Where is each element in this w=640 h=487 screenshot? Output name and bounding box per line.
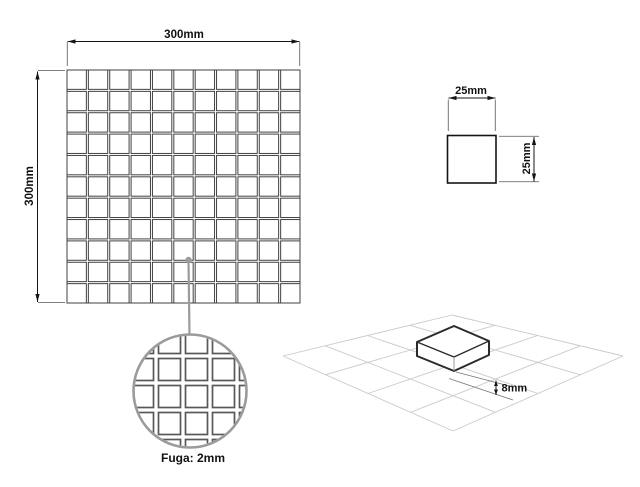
sheet-tile: [174, 155, 193, 174]
sheet-tile: [174, 134, 193, 153]
sheet-tile: [238, 113, 257, 132]
detail-tile: [159, 305, 181, 327]
sheet-tile: [88, 220, 107, 239]
iso-tile-silhouette: [417, 326, 489, 371]
sheet-tile: [281, 134, 300, 153]
sheet-tile: [281, 70, 300, 89]
sheet-tile: [88, 70, 107, 89]
sheet-tile: [152, 91, 171, 110]
sheet-tile: [110, 198, 129, 217]
sheet-tile: [88, 91, 107, 110]
sheet-tile: [195, 113, 214, 132]
sheet-tile: [152, 284, 171, 303]
detail-tile: [267, 413, 289, 435]
detail-tile: [240, 386, 262, 408]
sheet-tile: [238, 134, 257, 153]
detail-tile: [105, 359, 127, 381]
sheet-tile: [110, 134, 129, 153]
detail-tile: [132, 440, 154, 462]
sheet-tile: [195, 91, 214, 110]
sheet-tile: [238, 70, 257, 89]
sheet-tile: [281, 284, 300, 303]
sheet-height-label: 300mm: [24, 166, 36, 206]
sheet-tile: [67, 284, 86, 303]
single-tile: [448, 136, 497, 184]
sheet-tile: [174, 113, 193, 132]
sheet-tile: [281, 155, 300, 174]
sheet-tile: [238, 198, 257, 217]
sheet-tile: [259, 134, 278, 153]
sheet-tile: [238, 177, 257, 196]
sheet-tile: [152, 155, 171, 174]
sheet-tile: [110, 220, 129, 239]
sheet-tile: [174, 177, 193, 196]
sheet-tile: [88, 284, 107, 303]
sheet-tile: [152, 220, 171, 239]
sheet-tile: [131, 70, 150, 89]
sheet-tile: [174, 70, 193, 89]
sheet-tile: [281, 113, 300, 132]
sheet-tile: [259, 177, 278, 196]
detail-tile: [213, 305, 235, 327]
detail-tile: [240, 440, 262, 462]
sheet-tile: [110, 113, 129, 132]
sheet-tile: [238, 155, 257, 174]
sheet-tile: [259, 70, 278, 89]
grout-size-label: Fuga: 2mm: [161, 451, 225, 465]
sheet-tile: [238, 284, 257, 303]
sheet-tile: [238, 91, 257, 110]
sheet-tile: [88, 177, 107, 196]
sheet-tile: [281, 177, 300, 196]
detail-leader-dot: [185, 257, 191, 263]
sheet-tile: [174, 262, 193, 281]
detail-tile: [105, 332, 127, 354]
sheet-tile: [67, 177, 86, 196]
detail-tile: [267, 305, 289, 327]
detail-tile: [105, 305, 127, 327]
sheet-view: 300mm 300mm: [24, 29, 300, 303]
sheet-tile: [110, 91, 129, 110]
isometric-view: 8mm: [283, 315, 623, 431]
sheet-tile: [67, 262, 86, 281]
sheet-tile: [67, 241, 86, 260]
detail-tile: [186, 359, 208, 381]
sheet-tile: [131, 198, 150, 217]
sheet-tile: [152, 241, 171, 260]
sheet-tile: [281, 241, 300, 260]
detail-tile: [159, 413, 181, 435]
sheet-tile: [195, 284, 214, 303]
sheet-tile: [131, 91, 150, 110]
detail-tile: [267, 440, 289, 462]
sheet-tile: [217, 220, 236, 239]
sheet-tile: [217, 113, 236, 132]
sheet-tile: [259, 262, 278, 281]
sheet-tile: [88, 198, 107, 217]
sheet-tile: [110, 177, 129, 196]
detail-tile: [267, 332, 289, 354]
sheet-tile: [110, 70, 129, 89]
sheet-tile: [131, 134, 150, 153]
sheet-tile: [238, 262, 257, 281]
sheet-tile: [152, 70, 171, 89]
detail-tile: [267, 359, 289, 381]
sheet-tile: [238, 220, 257, 239]
detail-leader-line: [189, 260, 190, 335]
drawing-canvas: 300mm 300mm 25mm 25mm Fuga: 2mm: [0, 0, 640, 487]
detail-tile: [213, 332, 235, 354]
detail-tile: [186, 386, 208, 408]
detail-tile: [105, 440, 127, 462]
detail-tile: [240, 413, 262, 435]
sheet-tile: [195, 262, 214, 281]
sheet-tile: [110, 241, 129, 260]
mosaic-sheet-grid: [67, 70, 300, 303]
sheet-tile: [152, 262, 171, 281]
sheet-tile: [88, 113, 107, 132]
detail-tile: [213, 386, 235, 408]
sheet-tile: [217, 177, 236, 196]
sheet-tile: [281, 91, 300, 110]
detail-tile: [267, 386, 289, 408]
detail-tile: [240, 305, 262, 327]
sheet-tile: [131, 241, 150, 260]
detail-tile: [105, 413, 127, 435]
sheet-tile: [195, 220, 214, 239]
detail-tile: [240, 332, 262, 354]
detail-tile: [186, 413, 208, 435]
sheet-tile: [259, 241, 278, 260]
sheet-tile: [131, 113, 150, 132]
sheet-tile: [131, 220, 150, 239]
detail-tile: [159, 386, 181, 408]
sheet-tile: [281, 262, 300, 281]
sheet-tile: [110, 284, 129, 303]
sheet-tile: [174, 284, 193, 303]
sheet-tile: [217, 241, 236, 260]
sheet-tile: [131, 155, 150, 174]
sheet-tile: [217, 155, 236, 174]
sheet-tile: [195, 134, 214, 153]
sheet-tile: [281, 198, 300, 217]
iso-grid-line: [283, 356, 453, 431]
sheet-tile: [259, 220, 278, 239]
sheet-tile: [67, 70, 86, 89]
sheet-tile: [131, 177, 150, 196]
sheet-tile: [152, 177, 171, 196]
sheet-tile: [259, 91, 278, 110]
sheet-tile: [131, 262, 150, 281]
sheet-width-label: 300mm: [164, 29, 204, 41]
sheet-tile: [88, 134, 107, 153]
sheet-tile: [110, 262, 129, 281]
sheet-tile: [67, 198, 86, 217]
sheet-tile: [259, 113, 278, 132]
sheet-tile: [195, 70, 214, 89]
sheet-tile: [88, 155, 107, 174]
sheet-tile: [195, 198, 214, 217]
sheet-tile: [195, 177, 214, 196]
sheet-tile: [195, 241, 214, 260]
sheet-tile: [217, 70, 236, 89]
technical-drawing: 300mm 300mm 25mm 25mm Fuga: 2mm: [0, 0, 640, 487]
sheet-tile: [67, 91, 86, 110]
detail-tile: [132, 305, 154, 327]
sheet-tile: [152, 113, 171, 132]
sheet-tile: [67, 220, 86, 239]
sheet-tile: [195, 155, 214, 174]
sheet-tile: [217, 262, 236, 281]
sheet-tile: [152, 134, 171, 153]
sheet-tile: [110, 155, 129, 174]
sheet-tile: [217, 198, 236, 217]
sheet-tile: [259, 284, 278, 303]
sheet-tile: [259, 198, 278, 217]
single-tile-view: 25mm 25mm: [448, 85, 540, 183]
sheet-tile: [88, 262, 107, 281]
sheet-tile: [217, 134, 236, 153]
sheet-tile: [238, 241, 257, 260]
sheet-tile: [67, 113, 86, 132]
sheet-tile: [88, 241, 107, 260]
sheet-tile: [67, 134, 86, 153]
sheet-tile: [131, 284, 150, 303]
tile-height-label: 25mm: [521, 142, 533, 174]
detail-tile: [159, 359, 181, 381]
thickness-label: 8mm: [502, 383, 528, 395]
sheet-tile: [259, 155, 278, 174]
sheet-tile: [217, 284, 236, 303]
sheet-tile: [152, 198, 171, 217]
sheet-tile: [174, 91, 193, 110]
detail-tile: [105, 386, 127, 408]
iso-grid-line: [453, 356, 623, 431]
detail-tile: [213, 359, 235, 381]
sheet-tile: [67, 155, 86, 174]
sheet-tile: [217, 91, 236, 110]
sheet-tile: [174, 198, 193, 217]
tile-width-label: 25mm: [455, 85, 487, 97]
sheet-tile: [174, 220, 193, 239]
sheet-tile: [281, 220, 300, 239]
